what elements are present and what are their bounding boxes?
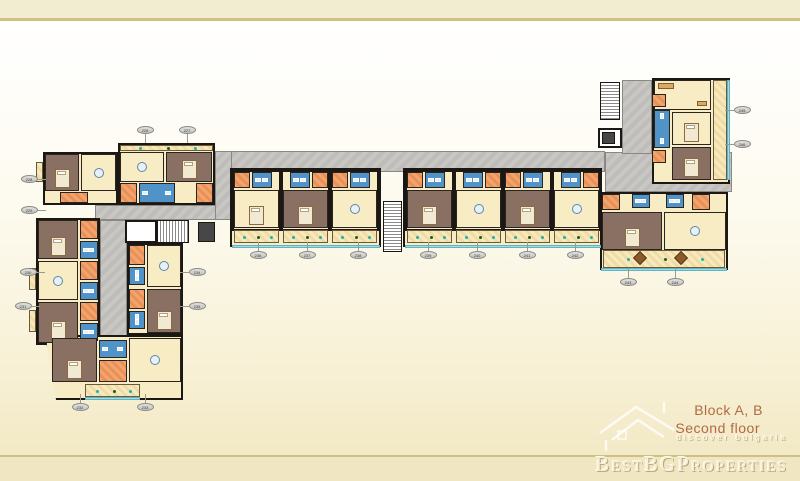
apartment-number-label: 243 <box>620 278 637 286</box>
dining-table <box>150 355 160 365</box>
label-leader-line <box>37 210 46 211</box>
bath-fixture <box>293 178 299 182</box>
room-entry <box>407 172 423 188</box>
label-leader-line <box>180 272 189 273</box>
apartment-number-label: 229 <box>21 206 38 214</box>
room-entry <box>602 194 620 210</box>
bed-pillow <box>184 162 193 166</box>
dining-table <box>690 226 700 236</box>
room-entry <box>80 302 98 321</box>
bath-fixture <box>142 191 148 195</box>
room-entry <box>583 172 599 188</box>
plant-dot <box>541 236 544 239</box>
bath-fixture <box>428 178 434 182</box>
label-leader-line <box>575 242 576 251</box>
room-entry <box>120 183 137 203</box>
corridor <box>95 205 232 220</box>
label-leader-line <box>428 242 429 251</box>
bath-fixture <box>660 138 664 144</box>
plant-dot <box>96 390 99 393</box>
label-leader-line <box>477 242 478 251</box>
plant-dot <box>292 236 295 239</box>
bath-fixture <box>674 199 680 203</box>
bath-fixture <box>255 178 261 182</box>
bed-pillow <box>159 313 168 317</box>
bath-fixture <box>526 178 532 182</box>
bath-fixture <box>300 178 306 182</box>
apartment-number-label: 236 <box>250 251 267 259</box>
plant-dot <box>577 236 580 239</box>
dining-table <box>137 162 147 172</box>
corridor <box>622 80 652 154</box>
bath-fixture <box>353 178 359 182</box>
terrace-edge <box>85 397 140 400</box>
stair-landing <box>125 220 157 243</box>
dining-table <box>572 204 582 214</box>
apartment-number-label: 242 <box>567 251 584 259</box>
plant-dot <box>355 236 358 239</box>
apartment-number-label: 240 <box>469 251 486 259</box>
label-leader-line <box>358 242 359 251</box>
bath-fixture <box>660 113 664 119</box>
plant-dot <box>479 236 482 239</box>
bed-pillow <box>57 171 66 175</box>
plant-dot <box>416 236 419 239</box>
apartment-number-label: 232 <box>72 403 89 411</box>
bath-fixture <box>360 178 366 182</box>
bed-pillow <box>53 323 62 327</box>
site-watermark: BestBGProperties <box>595 452 788 477</box>
bed-pillow <box>522 208 531 212</box>
plant-dot <box>443 236 446 239</box>
plant-dot <box>465 236 468 239</box>
apartment-number-label: 239 <box>420 251 437 259</box>
label-leader-line <box>725 144 734 145</box>
bed-pillow <box>627 230 636 234</box>
bath-fixture <box>262 178 268 182</box>
bath-fixture <box>564 178 570 182</box>
bath-fixture <box>435 178 441 182</box>
bath-fixture <box>102 347 108 351</box>
stairwell <box>383 201 402 252</box>
label-leader-line <box>527 242 528 251</box>
room-entry <box>99 360 127 382</box>
stairwell <box>600 82 620 120</box>
bath-fixture <box>473 178 479 182</box>
bath-fixture <box>571 178 577 182</box>
dining-table <box>53 276 63 286</box>
apartment-number-label: 227 <box>179 126 196 134</box>
bath-fixture <box>135 319 139 325</box>
apartment-number-label: 235 <box>189 302 206 310</box>
plant-dot <box>492 236 495 239</box>
label-leader-line <box>187 134 188 143</box>
label-leader-line <box>145 134 146 143</box>
label-leader-line <box>628 269 629 278</box>
bath-fixture <box>117 347 123 351</box>
plant-dot <box>664 258 667 261</box>
sofa <box>658 83 674 89</box>
bath-fixture <box>533 178 539 182</box>
room-entry <box>80 261 98 280</box>
dining-table <box>350 204 360 214</box>
room-entry <box>485 172 501 188</box>
bath-fixture <box>135 275 139 281</box>
terrace-edge <box>405 245 601 248</box>
room-entry <box>652 150 666 163</box>
room-entry <box>196 183 213 203</box>
terrace-edge <box>601 268 727 271</box>
plant-dot <box>257 236 260 239</box>
bath-fixture <box>165 191 171 195</box>
room-entry <box>80 220 98 239</box>
label-leader-line <box>80 394 81 403</box>
apartment-number-label: 244 <box>667 278 684 286</box>
bed-pillow <box>300 208 309 212</box>
tagline-watermark: discover bulgaria <box>677 433 788 442</box>
elevator-shaft <box>602 132 615 144</box>
bath-fixture <box>88 248 94 252</box>
bed-pillow <box>424 208 433 212</box>
bath-fixture <box>466 178 472 182</box>
plant-dot <box>514 236 517 239</box>
label-leader-line <box>307 242 308 251</box>
plant-dot <box>113 390 116 393</box>
label-leader-line <box>180 306 189 307</box>
dining-table <box>94 168 104 178</box>
label-leader-line <box>725 110 734 111</box>
plant-dot <box>701 258 704 261</box>
sofa <box>697 101 707 106</box>
room-entry <box>692 194 710 210</box>
label-leader-line <box>37 179 46 180</box>
room-entry <box>129 245 145 265</box>
label-leader-line <box>675 269 676 278</box>
apartment-number-label: 241 <box>519 251 536 259</box>
bed-pillow <box>686 160 695 164</box>
plant-dot <box>563 236 566 239</box>
room-entry <box>60 192 88 203</box>
plant-dot <box>270 236 273 239</box>
apartment-number-label: 233 <box>137 403 154 411</box>
label-leader-line <box>36 272 45 273</box>
plant-dot <box>129 390 132 393</box>
plant-dot <box>368 236 371 239</box>
apartment-number-label: 230 <box>20 268 37 276</box>
room-balcony <box>713 80 727 180</box>
plant-dot <box>319 236 322 239</box>
apartment-number-label: 237 <box>299 251 316 259</box>
room-entry <box>312 172 328 188</box>
bed-pillow <box>686 125 695 129</box>
apartment-number-label: 231 <box>15 302 32 310</box>
plant-dot <box>243 236 246 239</box>
room-entry <box>129 289 145 309</box>
room-entry <box>505 172 521 188</box>
apartment-number-label: 234 <box>189 268 206 276</box>
apartment-number-label: 226 <box>137 126 154 134</box>
apartment-number-label: 246 <box>734 140 751 148</box>
plant-dot <box>167 147 170 150</box>
label-leader-line <box>145 394 146 403</box>
bed-pillow <box>251 208 260 212</box>
plant-dot <box>139 147 142 150</box>
room-entry <box>652 94 666 107</box>
bath-fixture <box>640 199 646 203</box>
plant-dot <box>341 236 344 239</box>
room-entry <box>234 172 250 188</box>
elevator-shaft <box>198 222 215 242</box>
apartment-number-label: 228 <box>21 175 38 183</box>
corridor <box>100 220 127 345</box>
plant-dot <box>590 236 593 239</box>
bed-pillow <box>53 239 62 243</box>
plant-dot <box>430 236 433 239</box>
stairwell <box>157 220 189 243</box>
terrace-edge <box>727 80 730 180</box>
room-entry <box>332 172 348 188</box>
label-leader-line <box>258 242 259 251</box>
apartment-number-label: 238 <box>350 251 367 259</box>
room-balcony <box>29 310 36 332</box>
bed-pillow <box>69 362 78 366</box>
label-leader-line <box>31 306 40 307</box>
plant-dot <box>306 236 309 239</box>
dining-table <box>159 261 169 271</box>
apartment-number-label: 245 <box>734 106 751 114</box>
bath-fixture <box>88 330 94 334</box>
plant-dot <box>528 236 531 239</box>
bath-fixture <box>88 289 94 293</box>
dining-table <box>474 204 484 214</box>
block-title: Block A, B <box>694 402 763 418</box>
